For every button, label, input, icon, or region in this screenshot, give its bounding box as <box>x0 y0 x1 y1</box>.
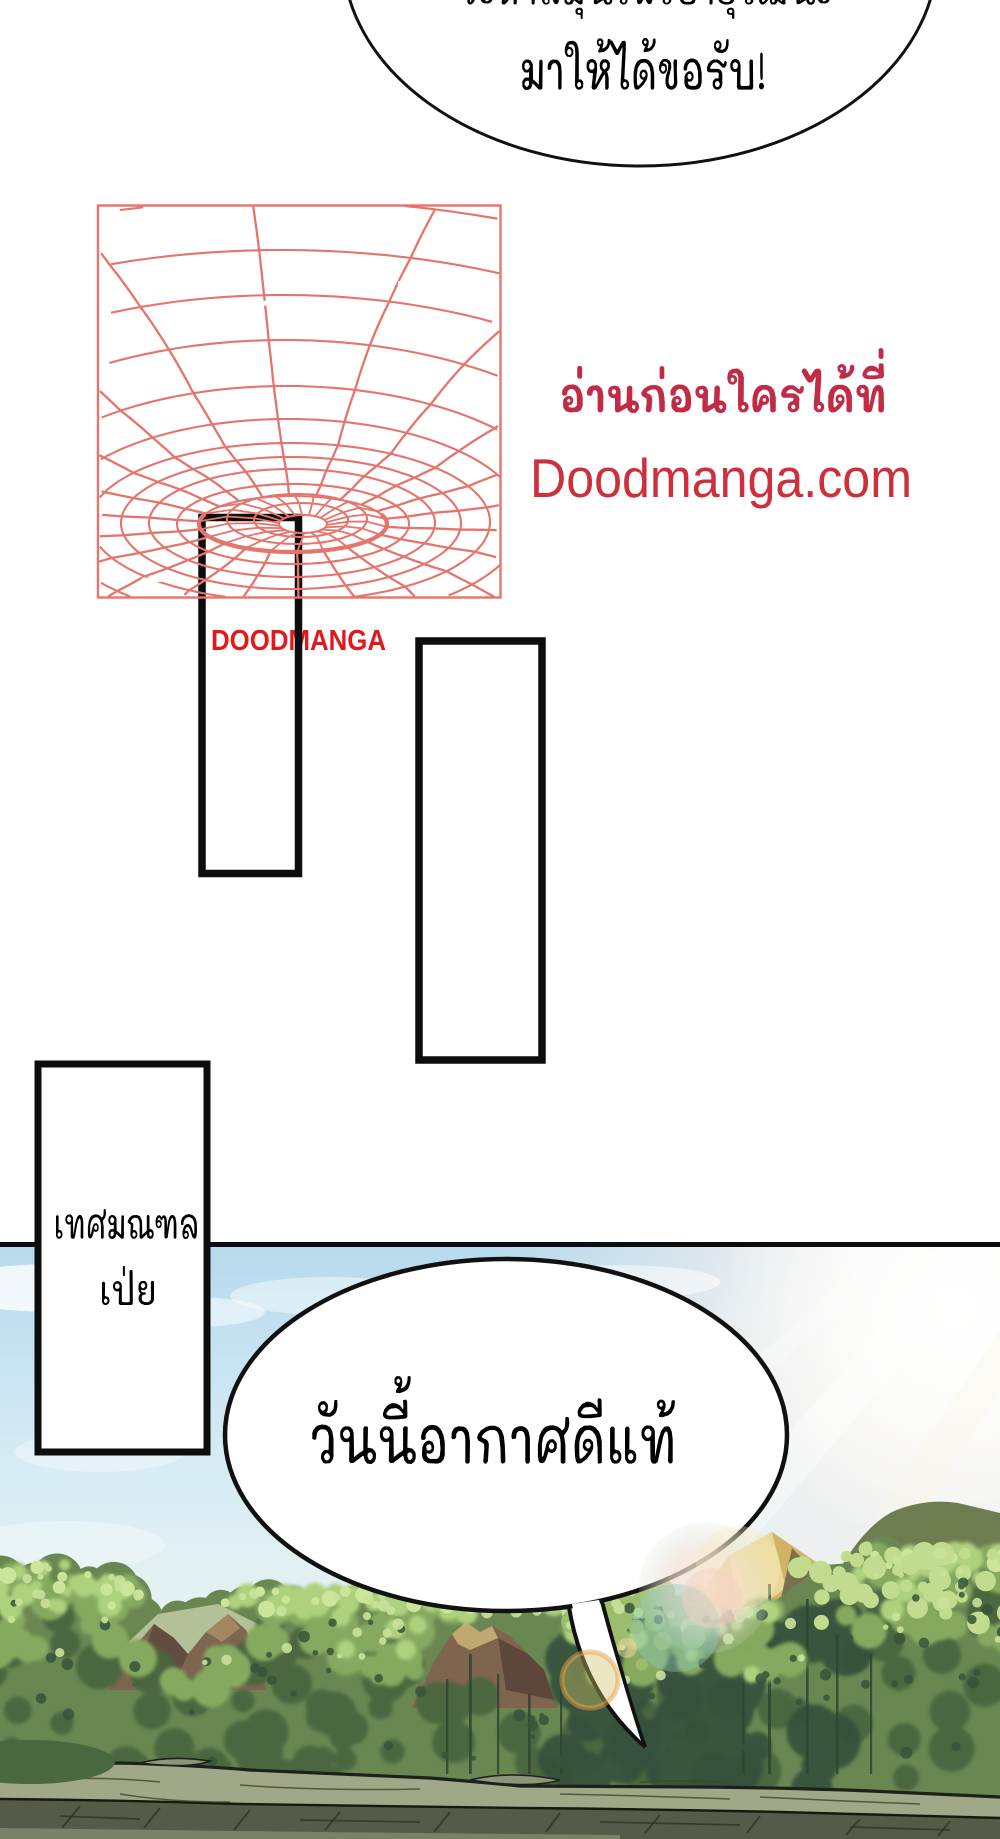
svg-text:Doodmanga.com: Doodmanga.com <box>530 447 912 509</box>
